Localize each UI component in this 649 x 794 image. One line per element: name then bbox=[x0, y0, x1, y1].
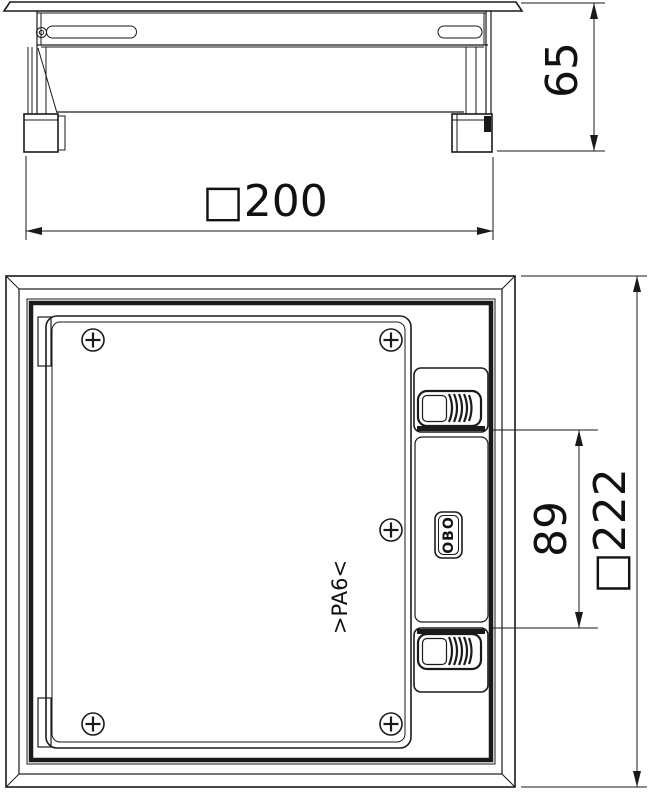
dim-height-65: 65 bbox=[497, 3, 605, 151]
handle-slot-left bbox=[37, 26, 137, 38]
dim-overall-label: □222 bbox=[585, 468, 636, 594]
obo-logo-badge: OBO bbox=[435, 512, 462, 558]
screw-middle-right bbox=[380, 519, 402, 541]
dim-latch-spacing-label: 89 bbox=[526, 501, 577, 557]
handle-slot-right bbox=[438, 26, 482, 38]
plan-view: OBO >PA6< 89 □222 bbox=[6, 276, 647, 787]
dim-latch-spacing-89: 89 bbox=[492, 430, 598, 628]
box-body bbox=[28, 47, 476, 114]
floor-plate-lid bbox=[4, 2, 522, 13]
screw-bottom-right bbox=[380, 713, 402, 735]
latch-bottom bbox=[414, 628, 488, 692]
screw-top-left bbox=[82, 329, 104, 351]
latch-top bbox=[414, 368, 488, 432]
foot-left bbox=[24, 114, 65, 152]
dim-height-label: 65 bbox=[537, 42, 588, 98]
latch-center-section: OBO bbox=[415, 437, 488, 622]
side-elevation-view: 65 □200 bbox=[4, 2, 605, 240]
obo-logo-text: OBO bbox=[441, 516, 457, 553]
hinge-tab-top bbox=[38, 317, 51, 366]
cover-lid bbox=[38, 316, 411, 748]
dim-width-200: □200 bbox=[26, 156, 493, 240]
screw-bottom-left bbox=[82, 713, 104, 735]
hinge-tab-bottom bbox=[38, 698, 51, 747]
material-marking-text: >PA6< bbox=[328, 560, 352, 634]
screw-top-right bbox=[380, 329, 402, 351]
technical-drawing-page: 65 □200 bbox=[0, 0, 649, 794]
dim-width-label: □200 bbox=[202, 176, 328, 227]
foot-right bbox=[452, 114, 492, 152]
